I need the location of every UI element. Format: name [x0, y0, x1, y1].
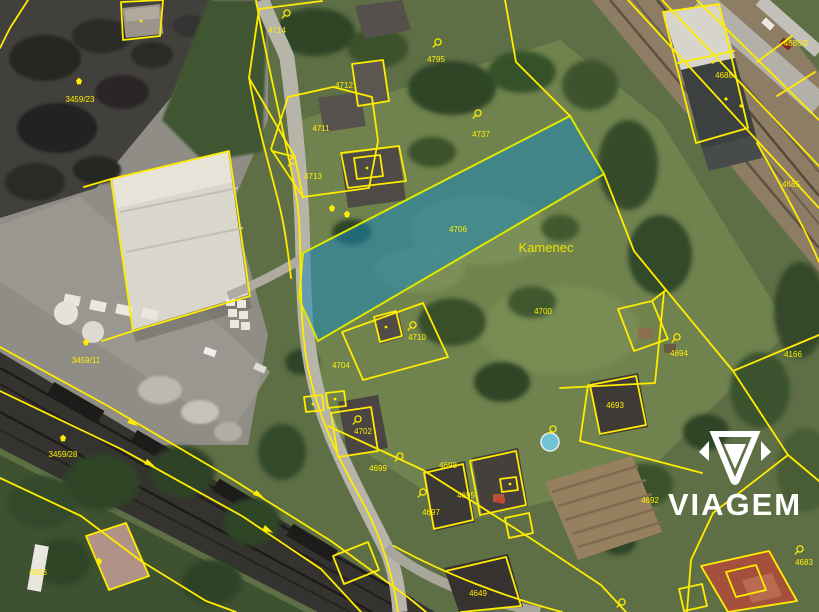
- parcel-label-4706: 4706: [449, 225, 467, 234]
- parcel-label-4710: 4710: [408, 333, 426, 342]
- parcel-label-4693: 4693: [606, 401, 624, 410]
- parcel-label-4702: 4702: [354, 427, 372, 436]
- parcel-label-4698: 4698: [439, 461, 457, 470]
- parcel-label-4795: 4795: [427, 55, 445, 64]
- parcel-label-4712: 4712: [335, 81, 353, 90]
- parcel-label-4713: 4713: [304, 172, 322, 181]
- parcel-label-4166: 4166: [784, 350, 802, 359]
- parcel-label-4699: 4699: [369, 464, 387, 473]
- parcel-label-4688: 4688: [715, 71, 733, 80]
- parcel-label-4695: 4695: [457, 491, 475, 500]
- parcel-label-4714: 4714: [268, 26, 286, 35]
- parcel-label-3459-28: 3459/28: [49, 450, 78, 459]
- parcel-label-4711: 4711: [312, 124, 330, 133]
- map-viewport[interactable]: 4714 4795 4712 4711 4713 4737 4706 4700 …: [0, 0, 819, 612]
- parcel-label-4692: 4692: [641, 496, 659, 505]
- parcel-label-4694: 4694: [670, 349, 688, 358]
- watermark-brand-text: VIAGEM: [668, 487, 802, 522]
- parcel-label-4683: 4683: [795, 558, 813, 567]
- parcel-label-3459-11: 3459/11: [72, 356, 101, 365]
- parcel-label-4737: 4737: [472, 130, 490, 139]
- area-label-kamenec: Kamenec: [519, 240, 574, 255]
- parcel-label-4697: 4697: [422, 508, 440, 517]
- parcel-label-4626: 4626: [29, 568, 47, 577]
- parcel-label-4685: 4685: [782, 180, 800, 189]
- parcel-label-3459-23: 3459/23: [66, 95, 95, 104]
- parcel-label-4700: 4700: [534, 307, 552, 316]
- parcel-label-4704: 4704: [332, 361, 350, 370]
- parcel-label-4649: 4649: [469, 589, 487, 598]
- parcel-label-4686-2: 4686/2: [784, 39, 809, 48]
